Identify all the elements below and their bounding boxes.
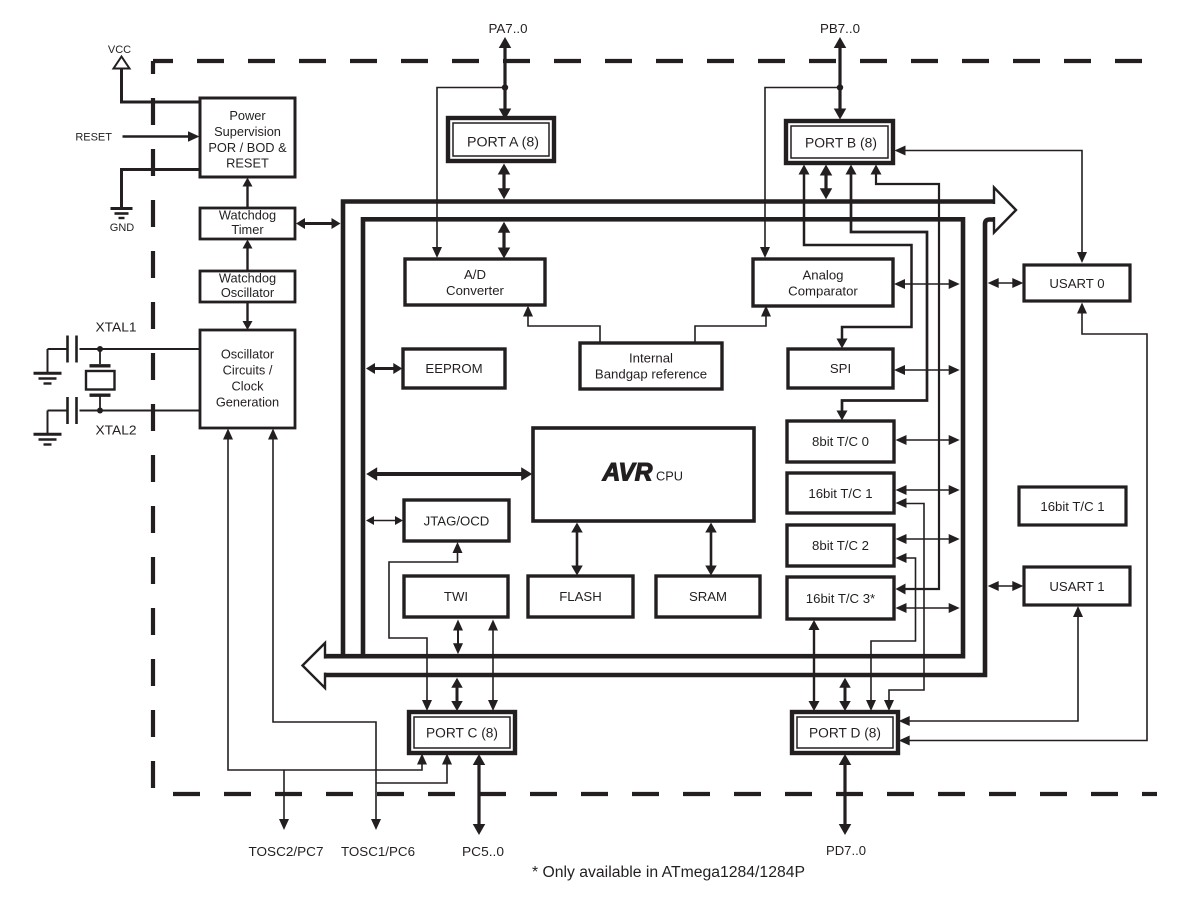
svg-text:GND: GND xyxy=(110,222,135,234)
svg-text:16bit T/C 1: 16bit T/C 1 xyxy=(808,486,872,501)
svg-text:VCC: VCC xyxy=(108,44,131,56)
svg-text:JTAG/OCD: JTAG/OCD xyxy=(424,514,490,529)
svg-text:POR / BOD &: POR / BOD & xyxy=(208,140,287,155)
svg-text:PORT C (8): PORT C (8) xyxy=(426,726,498,741)
svg-text:A/D: A/D xyxy=(464,267,486,282)
svg-text:8bit T/C 2: 8bit T/C 2 xyxy=(812,538,869,553)
svg-text:Clock: Clock xyxy=(232,379,265,394)
svg-text:Generation: Generation xyxy=(216,395,279,410)
svg-text:Supervision: Supervision xyxy=(214,124,281,139)
svg-text:RESET: RESET xyxy=(226,156,269,171)
svg-text:Watchdog: Watchdog xyxy=(219,208,276,223)
svg-text:PA7..0: PA7..0 xyxy=(489,21,528,36)
svg-text:CPU: CPU xyxy=(656,470,683,484)
svg-text:Oscillator: Oscillator xyxy=(221,285,275,300)
svg-text:SRAM: SRAM xyxy=(689,589,727,604)
svg-text:Bandgap reference: Bandgap reference xyxy=(595,367,707,382)
svg-text:* Only available in ATmega1284: * Only available in ATmega1284/1284P xyxy=(532,864,805,881)
svg-text:8bit T/C 0: 8bit T/C 0 xyxy=(812,434,869,449)
svg-text:PORT A (8): PORT A (8) xyxy=(467,135,539,150)
svg-text:XTAL2: XTAL2 xyxy=(96,423,137,438)
svg-text:SPI: SPI xyxy=(830,361,851,376)
svg-text:PD7..0: PD7..0 xyxy=(826,843,866,858)
svg-text:Converter: Converter xyxy=(446,283,505,298)
svg-text:FLASH: FLASH xyxy=(559,589,602,604)
svg-text:PB7..0: PB7..0 xyxy=(820,21,860,36)
svg-text:RESET: RESET xyxy=(75,132,112,144)
svg-text:XTAL1: XTAL1 xyxy=(96,320,137,335)
svg-text:Circuits /: Circuits / xyxy=(223,363,273,378)
svg-text:TOSC2/PC7: TOSC2/PC7 xyxy=(249,844,324,859)
svg-text:Analog: Analog xyxy=(802,268,843,283)
svg-text:TWI: TWI xyxy=(444,589,468,604)
svg-text:Comparator: Comparator xyxy=(788,284,858,299)
svg-text:EEPROM: EEPROM xyxy=(425,361,482,376)
svg-text:PORT D (8): PORT D (8) xyxy=(809,726,881,741)
svg-text:USART 0: USART 0 xyxy=(1049,276,1104,291)
svg-text:Timer: Timer xyxy=(231,222,264,237)
svg-text:PORT B (8): PORT B (8) xyxy=(805,136,877,151)
svg-text:Oscillator: Oscillator xyxy=(221,347,275,362)
svg-text:16bit T/C 3*: 16bit T/C 3* xyxy=(806,591,875,606)
svg-text:Power: Power xyxy=(229,108,266,123)
svg-text:Watchdog: Watchdog xyxy=(219,271,276,286)
svg-text:USART 1: USART 1 xyxy=(1049,579,1104,594)
svg-text:Internal: Internal xyxy=(629,351,673,366)
svg-text:16bit T/C 1: 16bit T/C 1 xyxy=(1040,499,1104,514)
svg-text:TOSC1/PC6: TOSC1/PC6 xyxy=(341,844,415,859)
svg-text:AVR: AVR xyxy=(602,459,653,487)
svg-text:PC5..0: PC5..0 xyxy=(462,844,504,859)
